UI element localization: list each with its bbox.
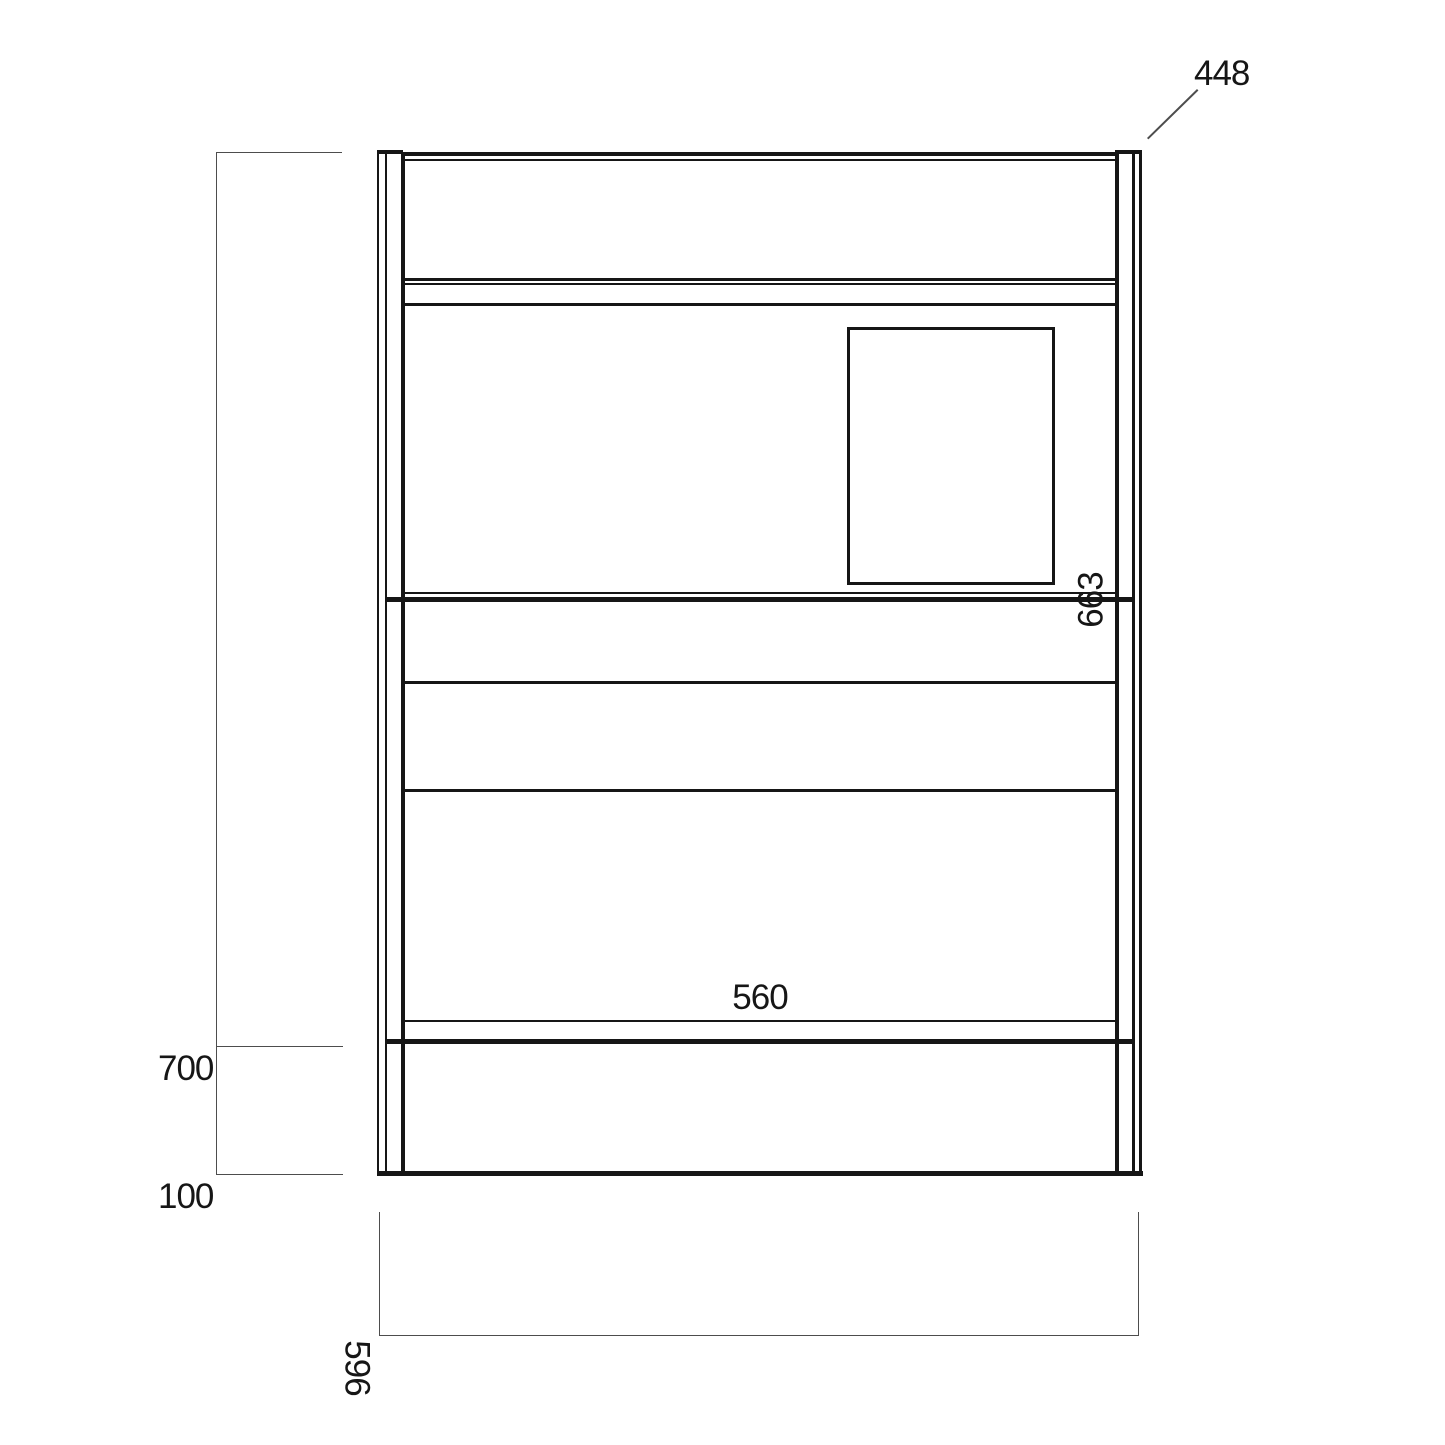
depth-leader-line (1147, 89, 1198, 139)
left-dimension-tick-middle (216, 1046, 343, 1047)
left-dimension-tick-bottom (216, 1174, 343, 1175)
bottom-bracket-line (379, 1335, 1139, 1336)
upper-rail-line-1 (405, 278, 1115, 281)
technical-drawing-canvas: 448 700 100 560 663 596 (0, 0, 1445, 1445)
upper-rail-line-2 (405, 283, 1115, 285)
mid-joint-thin-line (405, 592, 1115, 594)
left-panel-inner-line (385, 150, 387, 1173)
left-dimension-tick-top (216, 152, 342, 153)
right-panel-outer-line (1139, 150, 1142, 1173)
dimension-label-448: 448 (1194, 56, 1249, 91)
dimension-label-700: 700 (158, 1051, 212, 1086)
worktop-inner-line (405, 159, 1115, 161)
cabinet-bottom-edge (377, 1171, 1143, 1176)
left-panel-outer-line (377, 150, 379, 1173)
upper-rail-bottom-line (405, 303, 1115, 306)
plinth-top-thick-line (386, 1039, 1134, 1044)
right-panel-top-cap (1115, 150, 1142, 154)
right-panel-inner-line (1132, 150, 1135, 1173)
dimension-label-663: 663 (1074, 572, 1109, 627)
dimension-label-560: 560 (720, 980, 800, 1015)
mid-joint-thick-line (386, 597, 1134, 602)
bottom-bracket-left-tick (379, 1212, 380, 1335)
plinth-top-thin-line (405, 1020, 1115, 1022)
shelf-line-2 (405, 789, 1115, 792)
left-panel-top-cap (377, 150, 403, 154)
access-cutout-rectangle (847, 327, 1055, 585)
left-dimension-line (216, 152, 217, 1174)
shelf-line-1 (405, 681, 1115, 684)
cabinet-top-edge (401, 152, 1119, 156)
dimension-label-596: 596 (340, 1340, 375, 1395)
cabinet-right-edge (1115, 152, 1119, 1176)
bottom-bracket-right-tick (1138, 1212, 1139, 1335)
dimension-label-100: 100 (158, 1179, 212, 1214)
